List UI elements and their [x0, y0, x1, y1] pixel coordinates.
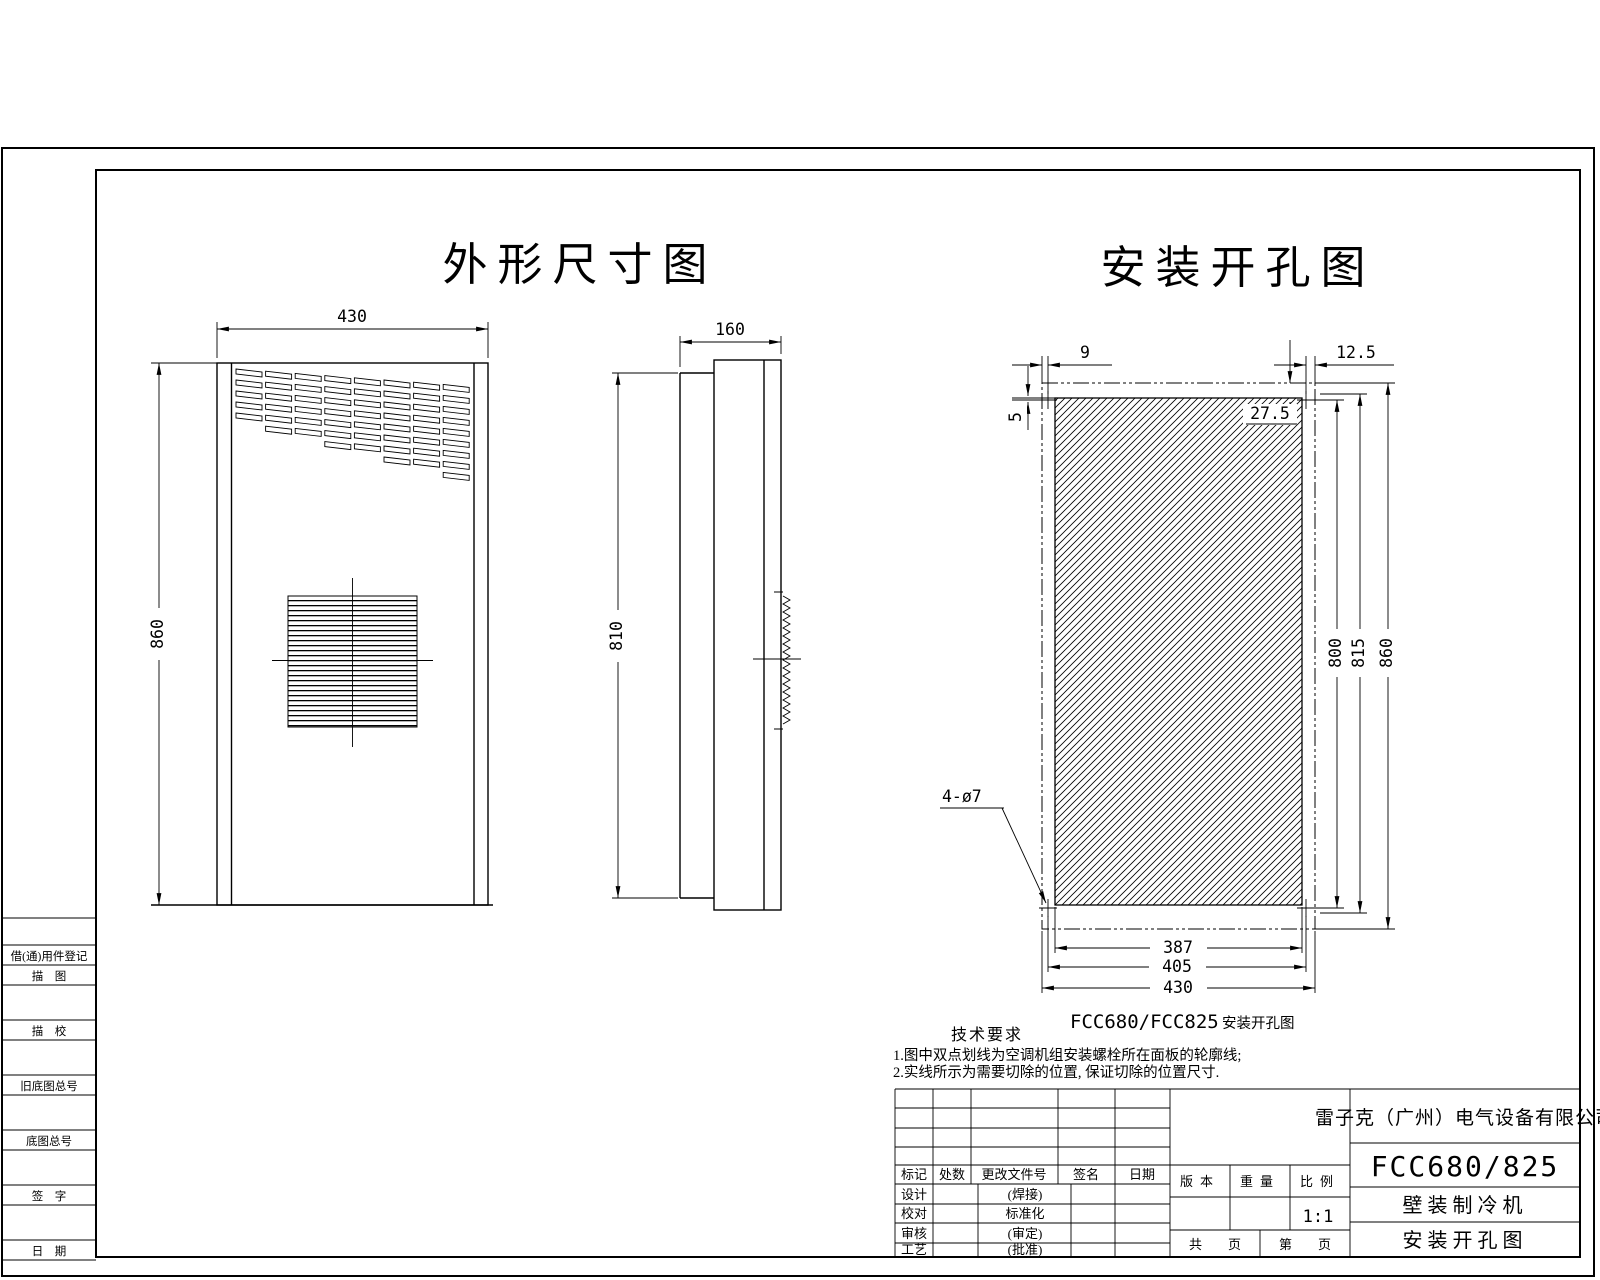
- approval-standard: 标准化: [1005, 1206, 1044, 1221]
- side-depth-dim: 160: [715, 320, 745, 339]
- side-height-dim: 810: [607, 621, 626, 651]
- install-view-title: 安装开孔图: [1100, 243, 1375, 293]
- side-view-outline: [714, 360, 781, 910]
- approval-review: (审定): [1008, 1226, 1043, 1241]
- margin-label-borrow: 借(通)用件登记: [11, 949, 88, 963]
- rev-header-date: 日期: [1129, 1167, 1155, 1182]
- dim-hole-to-edge-right: 12.5: [1336, 343, 1376, 362]
- tech-note-2: 2.实线所示为需要切除的位置, 保证切除的位置尺寸.: [893, 1064, 1219, 1081]
- margin-label-trace: 描 图: [32, 969, 67, 983]
- rev-header-mark: 标记: [901, 1167, 927, 1182]
- side-view: 160 810: [607, 320, 801, 910]
- role-audit: 审核: [901, 1226, 927, 1241]
- role-design: 设计: [901, 1187, 927, 1202]
- margin-label-trace-check: 描 校: [32, 1024, 67, 1038]
- approval-approve: (批准): [1008, 1242, 1043, 1257]
- rev-header-count: 处数: [939, 1167, 965, 1182]
- louver-vents: [236, 369, 469, 480]
- dim-panel-width: 430: [1163, 978, 1193, 997]
- meta-version: 版本: [1180, 1174, 1220, 1189]
- rev-header-signature: 签名: [1073, 1167, 1099, 1182]
- approval-weld: (焊接): [1008, 1187, 1043, 1202]
- outer-frame: [2, 148, 1594, 1276]
- dim-panel-height: 860: [1377, 638, 1396, 668]
- front-width-dim: 430: [337, 307, 367, 326]
- dim-hole-spacing-v: 800: [1326, 638, 1345, 668]
- tech-note-1: 1.图中双点划线为空调机组安装螺栓所在面板的轮廓线;: [893, 1046, 1241, 1064]
- margin-register-column: 借(通)用件登记 描 图 描 校 旧底图总号 底图总号 签 字 日 期: [2, 918, 96, 1260]
- tech-notes-title: 技术要求: [951, 1026, 1023, 1044]
- dim-cut-width: 387: [1163, 938, 1193, 957]
- total-pages: 共 页: [1189, 1237, 1241, 1252]
- margin-label-signature: 签 字: [32, 1189, 67, 1203]
- outline-view-title: 外形尺寸图: [442, 240, 717, 290]
- role-process: 工艺: [901, 1242, 927, 1257]
- dim-top-to-hole: 27.5: [1250, 404, 1290, 423]
- model-number: FCC680/825: [1371, 1150, 1560, 1183]
- install-cutout-view: 9 12.5 27.5 5 800 815 860 387 405 430: [940, 340, 1396, 1033]
- front-height-dim: 860: [148, 619, 167, 649]
- page-number: 第 页: [1279, 1237, 1331, 1252]
- scale-value: 1:1: [1303, 1207, 1334, 1227]
- margin-label-old-master-no: 旧底图总号: [20, 1079, 78, 1093]
- meta-scale: 比例: [1300, 1174, 1340, 1189]
- mounting-seal-zigzag: [783, 596, 790, 724]
- product-name: 壁装制冷机: [1403, 1194, 1528, 1217]
- install-caption-text: 安装开孔图: [1222, 1015, 1295, 1032]
- role-check: 校对: [901, 1206, 927, 1221]
- margin-label-master-no: 底图总号: [26, 1134, 72, 1148]
- view-titles: 外形尺寸图 安装开孔图: [442, 240, 1375, 293]
- sheet-frame: [2, 148, 1594, 1276]
- engineering-drawing: 借(通)用件登记 描 图 描 校 旧底图总号 底图总号 签 字 日 期 外形尺寸…: [0, 0, 1600, 1280]
- drawing-name: 安装开孔图: [1403, 1229, 1528, 1252]
- dim-hole-spacing-h: 405: [1162, 957, 1192, 976]
- dim-hole-to-cut: 5: [1006, 412, 1025, 422]
- dim-cut-height: 815: [1349, 638, 1368, 668]
- front-view: 430 860: [148, 307, 493, 905]
- dim-edge-to-hole-left: 9: [1080, 343, 1090, 362]
- technical-notes: 技术要求 1.图中双点划线为空调机组安装螺栓所在面板的轮廓线; 2.实线所示为需…: [893, 1026, 1241, 1081]
- cutout-hatched-area: [1055, 398, 1302, 905]
- meta-weight: 重量: [1240, 1174, 1280, 1189]
- drawing-sheet: 借(通)用件登记 描 图 描 校 旧底图总号 底图总号 签 字 日 期 外形尺寸…: [0, 0, 1600, 1280]
- company-name: 雷子克（广州）电气设备有限公司: [1315, 1107, 1600, 1129]
- install-caption-model: FCC680/FCC825: [1070, 1011, 1219, 1033]
- rev-header-doc-no: 更改文件号: [981, 1167, 1046, 1182]
- hole-callout: 4-ø7: [942, 787, 982, 806]
- title-block: 标记 处数 更改文件号 签名 日期 设计 校对 审核 工艺 (焊接) 标准化 (…: [895, 1089, 1600, 1257]
- margin-label-date: 日 期: [32, 1245, 67, 1258]
